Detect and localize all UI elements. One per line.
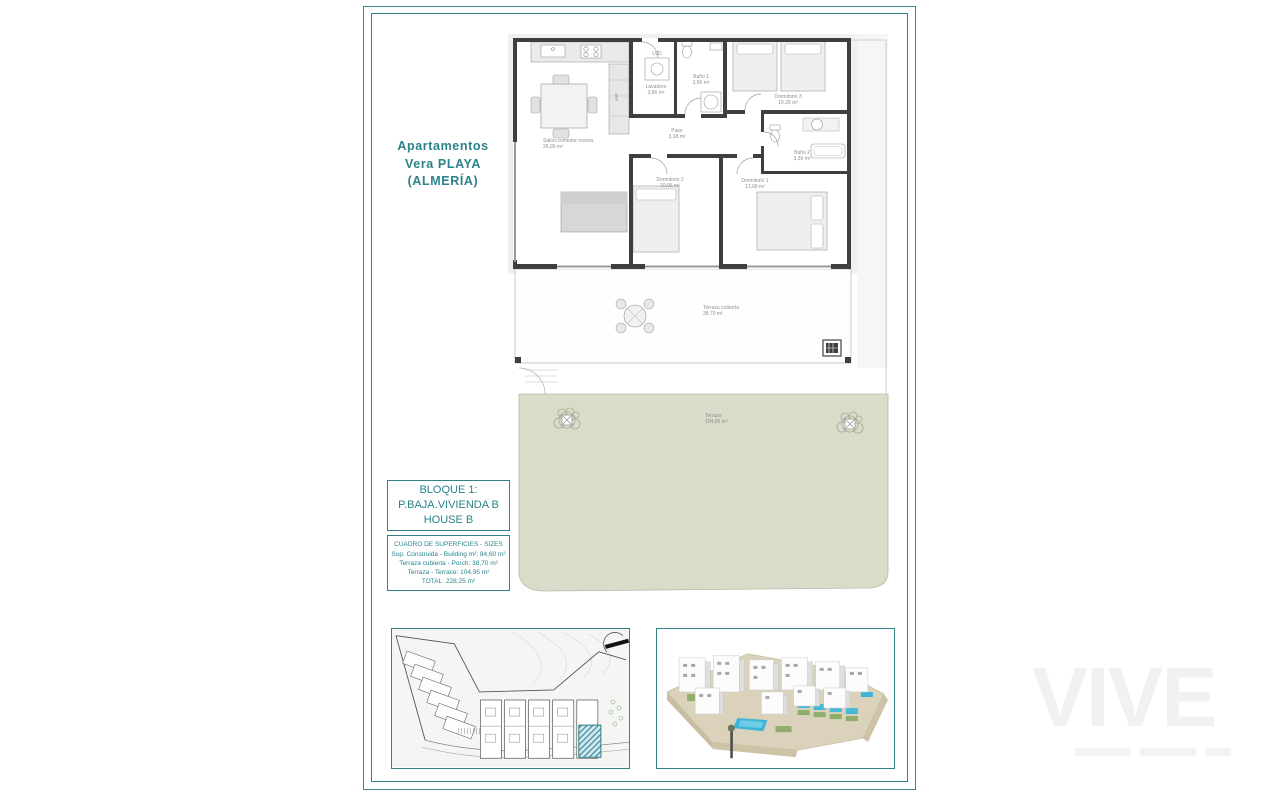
sizes-table: CUADRO DE SUPERFICIES - SIZES Sup. Const… [387, 535, 510, 591]
unit-id-box: BLOQUE 1: P.BAJA.VIVIENDA B HOUSE B [387, 480, 510, 531]
room-area: 13,68 m² [745, 184, 765, 190]
sizes-table-row: Terraza - Terrace: 104,95 m² [389, 568, 508, 577]
site-plan-panel [391, 628, 630, 769]
room-area: 3,36 m² [794, 156, 811, 162]
project-title-line: Vera PLAYA [375, 156, 511, 174]
buildings [679, 656, 868, 714]
project-title-line: Apartamentos [375, 138, 511, 156]
room-area: 104,95 m² [705, 419, 728, 425]
room-area: 3,90 m² [693, 80, 710, 86]
room-area: 10,06 m² [660, 183, 680, 189]
watermark-tagline-block [1140, 748, 1196, 756]
render-panel [656, 628, 895, 769]
unit-id-line: BLOQUE 1: [388, 483, 509, 498]
room-area: 26,99 m² [543, 144, 563, 150]
garden-steps [519, 368, 557, 394]
room-area: 3,18 m² [669, 134, 686, 140]
sizes-table-row: Terraza cubierta - Porch: 38,70 m² [389, 559, 508, 568]
unit-id-line: P.BAJA.VIVIENDA B [388, 498, 509, 513]
watermark-tagline-block [1205, 748, 1231, 756]
floor-plan-drawing: Salón-comedor-cocina 26,99 m² LVD Lavade… [505, 28, 905, 603]
room-area: 10,28 m² [778, 100, 798, 106]
watermark-tagline-block [1075, 748, 1131, 756]
render-drawing [657, 629, 894, 768]
room-area: 38,70 m² [703, 311, 723, 317]
project-title-line: (ALMERÍA) [375, 173, 511, 191]
water-heater-label: HW [614, 93, 619, 101]
site-plan-drawing [392, 629, 629, 768]
sizes-table-row: Sup. Construida - Building m²: 84,60 m² [389, 550, 508, 559]
plan-sheet-page: Apartamentos Vera PLAYA (ALMERÍA) [0, 0, 1280, 800]
washer-dryer-label: LVD [652, 51, 662, 57]
sizes-table-row: TOTAL: 228,25 m² [389, 577, 508, 586]
highlighted-unit [579, 725, 601, 757]
watermark-tagline [1075, 748, 1231, 756]
unit-id-line: HOUSE B [388, 513, 509, 528]
sizes-table-title: CUADRO DE SUPERFICIES - SIZES [389, 540, 508, 549]
watermark-logo: VIVE [1032, 652, 1280, 742]
project-title: Apartamentos Vera PLAYA (ALMERÍA) [375, 138, 511, 191]
room-area: 3,86 m² [648, 90, 665, 96]
